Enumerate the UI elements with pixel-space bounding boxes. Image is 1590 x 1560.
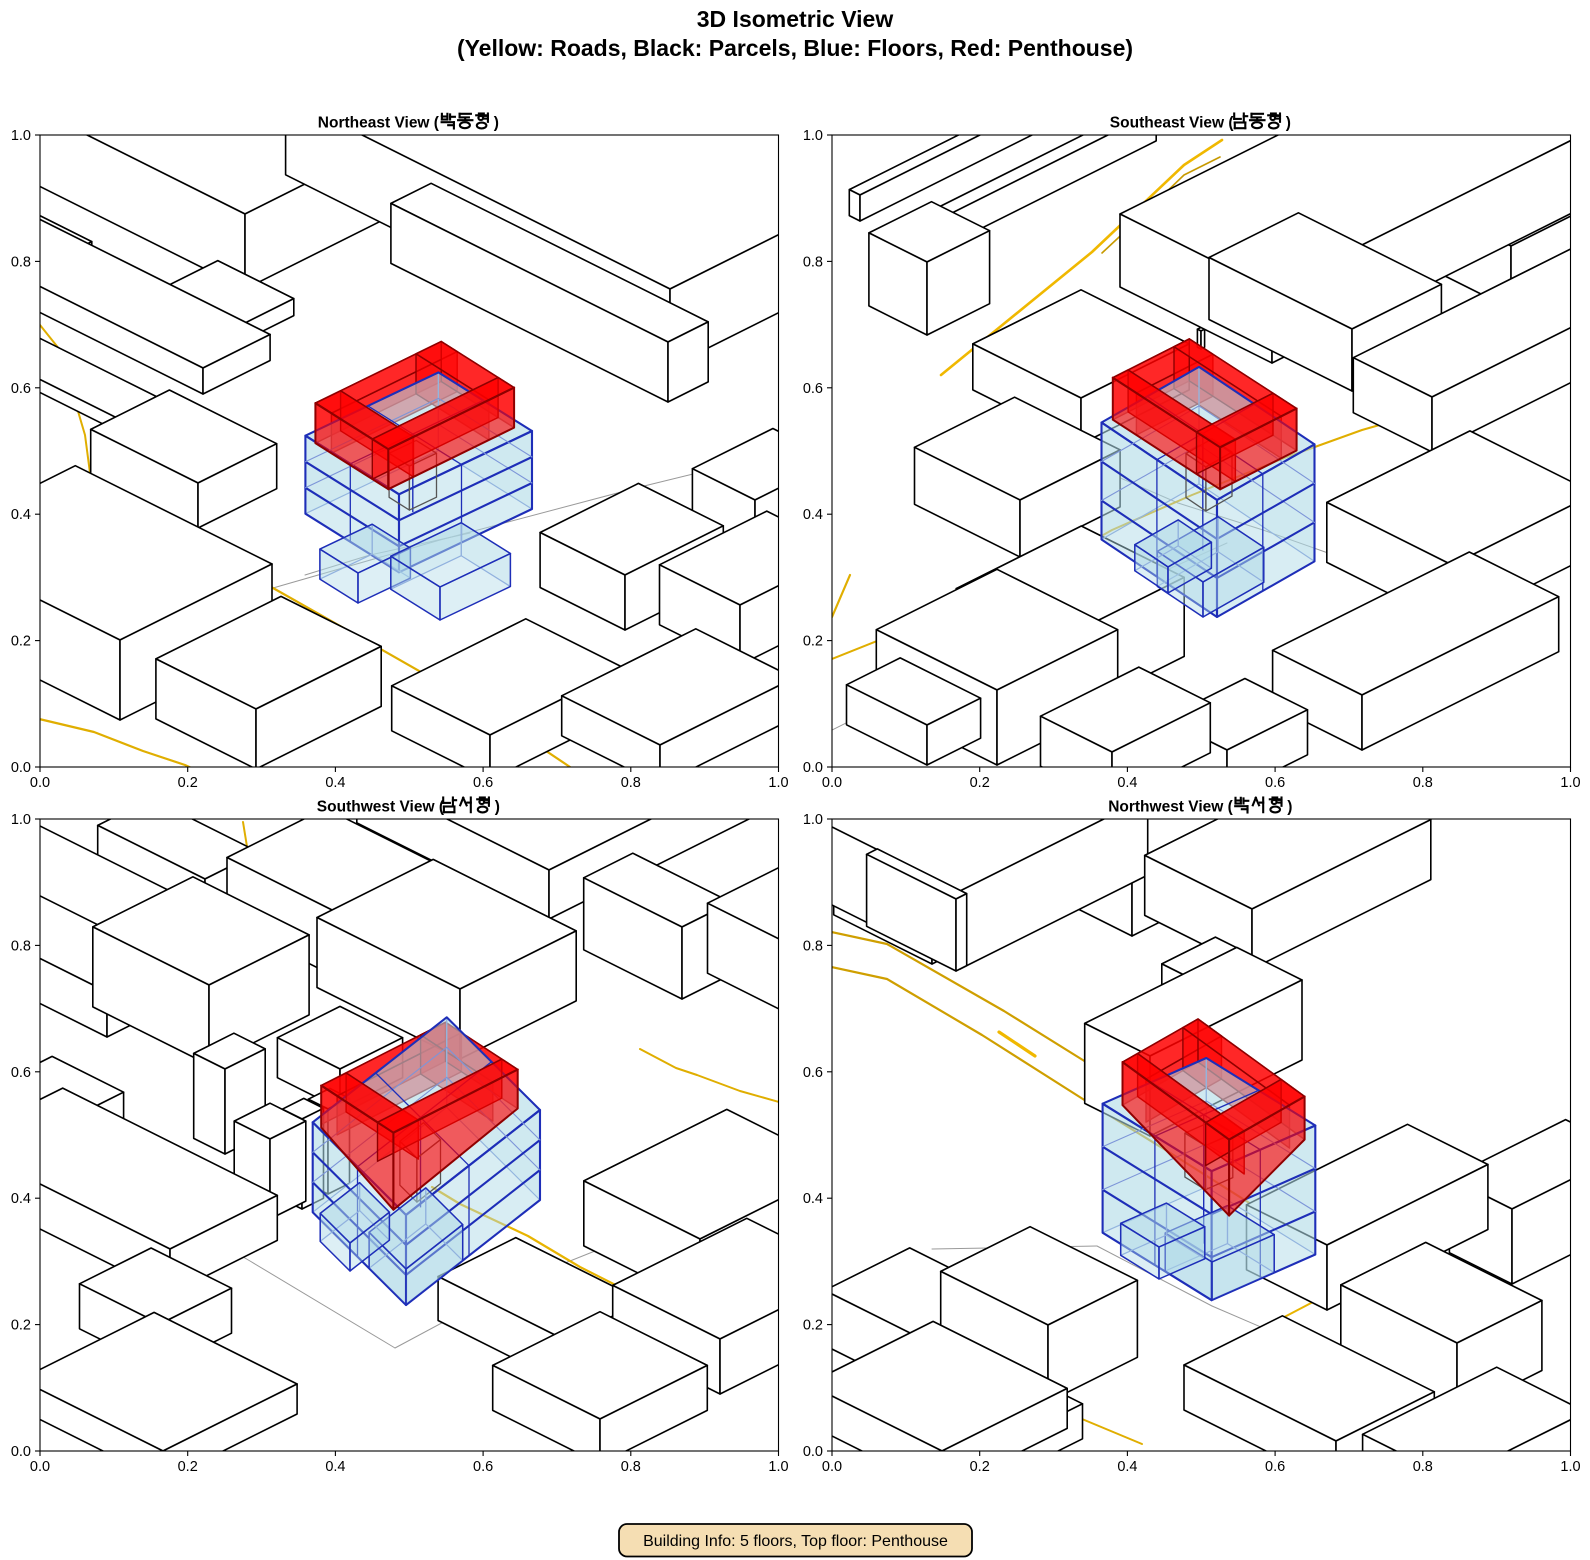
svg-text:0.0: 0.0 xyxy=(30,775,50,791)
svg-text:1.0: 1.0 xyxy=(1560,1459,1580,1475)
svg-text:0.8: 0.8 xyxy=(803,254,823,270)
svg-text:0.6: 0.6 xyxy=(803,1065,823,1081)
svg-text:0.2: 0.2 xyxy=(970,775,990,791)
svg-text:0.8: 0.8 xyxy=(11,254,31,270)
svg-text:0.8: 0.8 xyxy=(11,938,31,954)
svg-text:0.0: 0.0 xyxy=(30,1459,50,1475)
svg-text:): ) xyxy=(1286,115,1291,132)
svg-text:0.0: 0.0 xyxy=(11,760,31,776)
svg-text:1.0: 1.0 xyxy=(1560,775,1580,791)
svg-text:): ) xyxy=(494,115,499,132)
svg-text:0.6: 0.6 xyxy=(11,1065,31,1081)
svg-text:0.6: 0.6 xyxy=(473,1459,493,1475)
svg-text:0.8: 0.8 xyxy=(621,1459,641,1475)
svg-text:0.6: 0.6 xyxy=(1265,775,1285,791)
svg-text:0.4: 0.4 xyxy=(1117,775,1137,791)
svg-text:): ) xyxy=(495,799,500,816)
svg-text:0.6: 0.6 xyxy=(803,381,823,397)
svg-text:0.6: 0.6 xyxy=(1265,1459,1285,1475)
svg-text:0.4: 0.4 xyxy=(11,507,31,523)
svg-text:0.2: 0.2 xyxy=(803,1318,823,1334)
svg-text:3D Isometric View: 3D Isometric View xyxy=(697,6,894,32)
svg-text:0.2: 0.2 xyxy=(803,634,823,650)
svg-text:0.0: 0.0 xyxy=(803,1444,823,1460)
svg-text:1.0: 1.0 xyxy=(768,1459,788,1475)
svg-text:0.0: 0.0 xyxy=(822,775,842,791)
svg-text:0.4: 0.4 xyxy=(803,507,823,523)
svg-text:): ) xyxy=(1287,799,1292,816)
svg-text:0.8: 0.8 xyxy=(803,938,823,954)
svg-text:0.4: 0.4 xyxy=(325,1459,345,1475)
svg-text:0.2: 0.2 xyxy=(178,1459,198,1475)
svg-text:0.6: 0.6 xyxy=(473,775,493,791)
svg-text:1.0: 1.0 xyxy=(11,812,31,828)
svg-text:Building Info: 5 floors, Top f: Building Info: 5 floors, Top floor: Pent… xyxy=(643,1533,948,1550)
svg-text:Northwest View (: Northwest View ( xyxy=(1108,799,1233,816)
svg-text:0.6: 0.6 xyxy=(11,381,31,397)
svg-text:0.0: 0.0 xyxy=(803,760,823,776)
svg-text:0.4: 0.4 xyxy=(1117,1459,1137,1475)
svg-text:0.2: 0.2 xyxy=(178,775,198,791)
svg-text:1.0: 1.0 xyxy=(11,128,31,144)
svg-text:0.8: 0.8 xyxy=(1413,1459,1433,1475)
svg-text:0.2: 0.2 xyxy=(11,1318,31,1334)
svg-text:0.0: 0.0 xyxy=(822,1459,842,1475)
svg-text:Northeast View (: Northeast View ( xyxy=(318,115,440,132)
svg-text:1.0: 1.0 xyxy=(803,128,823,144)
svg-text:0.8: 0.8 xyxy=(621,775,641,791)
svg-text:0.2: 0.2 xyxy=(970,1459,990,1475)
svg-text:Southeast View (: Southeast View ( xyxy=(1110,115,1235,132)
svg-text:Southwest View (: Southwest View ( xyxy=(317,799,445,816)
svg-text:0.4: 0.4 xyxy=(11,1191,31,1207)
svg-text:0.2: 0.2 xyxy=(11,634,31,650)
svg-text:0.4: 0.4 xyxy=(803,1191,823,1207)
svg-text:1.0: 1.0 xyxy=(803,812,823,828)
svg-text:0.4: 0.4 xyxy=(325,775,345,791)
svg-text:1.0: 1.0 xyxy=(768,775,788,791)
svg-text:(Yellow: Roads, Black: Parcels: (Yellow: Roads, Black: Parcels, Blue: Fl… xyxy=(457,35,1133,61)
svg-text:0.8: 0.8 xyxy=(1413,775,1433,791)
svg-text:0.0: 0.0 xyxy=(11,1444,31,1460)
